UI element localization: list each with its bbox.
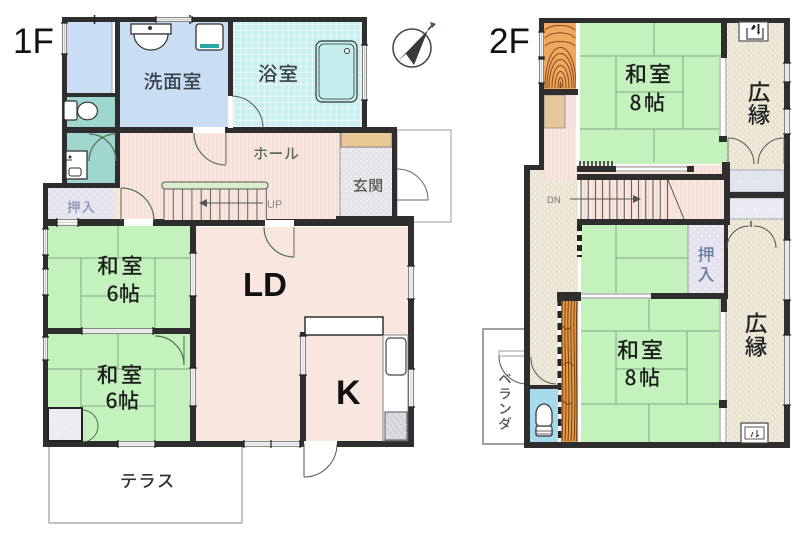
svg-text:LD: LD — [243, 266, 287, 303]
svg-text:2F: 2F — [489, 22, 530, 61]
svg-text:1F: 1F — [13, 22, 54, 61]
svg-text:K: K — [336, 374, 361, 412]
svg-text:DN: DN — [547, 195, 561, 206]
svg-text:UP: UP — [267, 199, 282, 211]
